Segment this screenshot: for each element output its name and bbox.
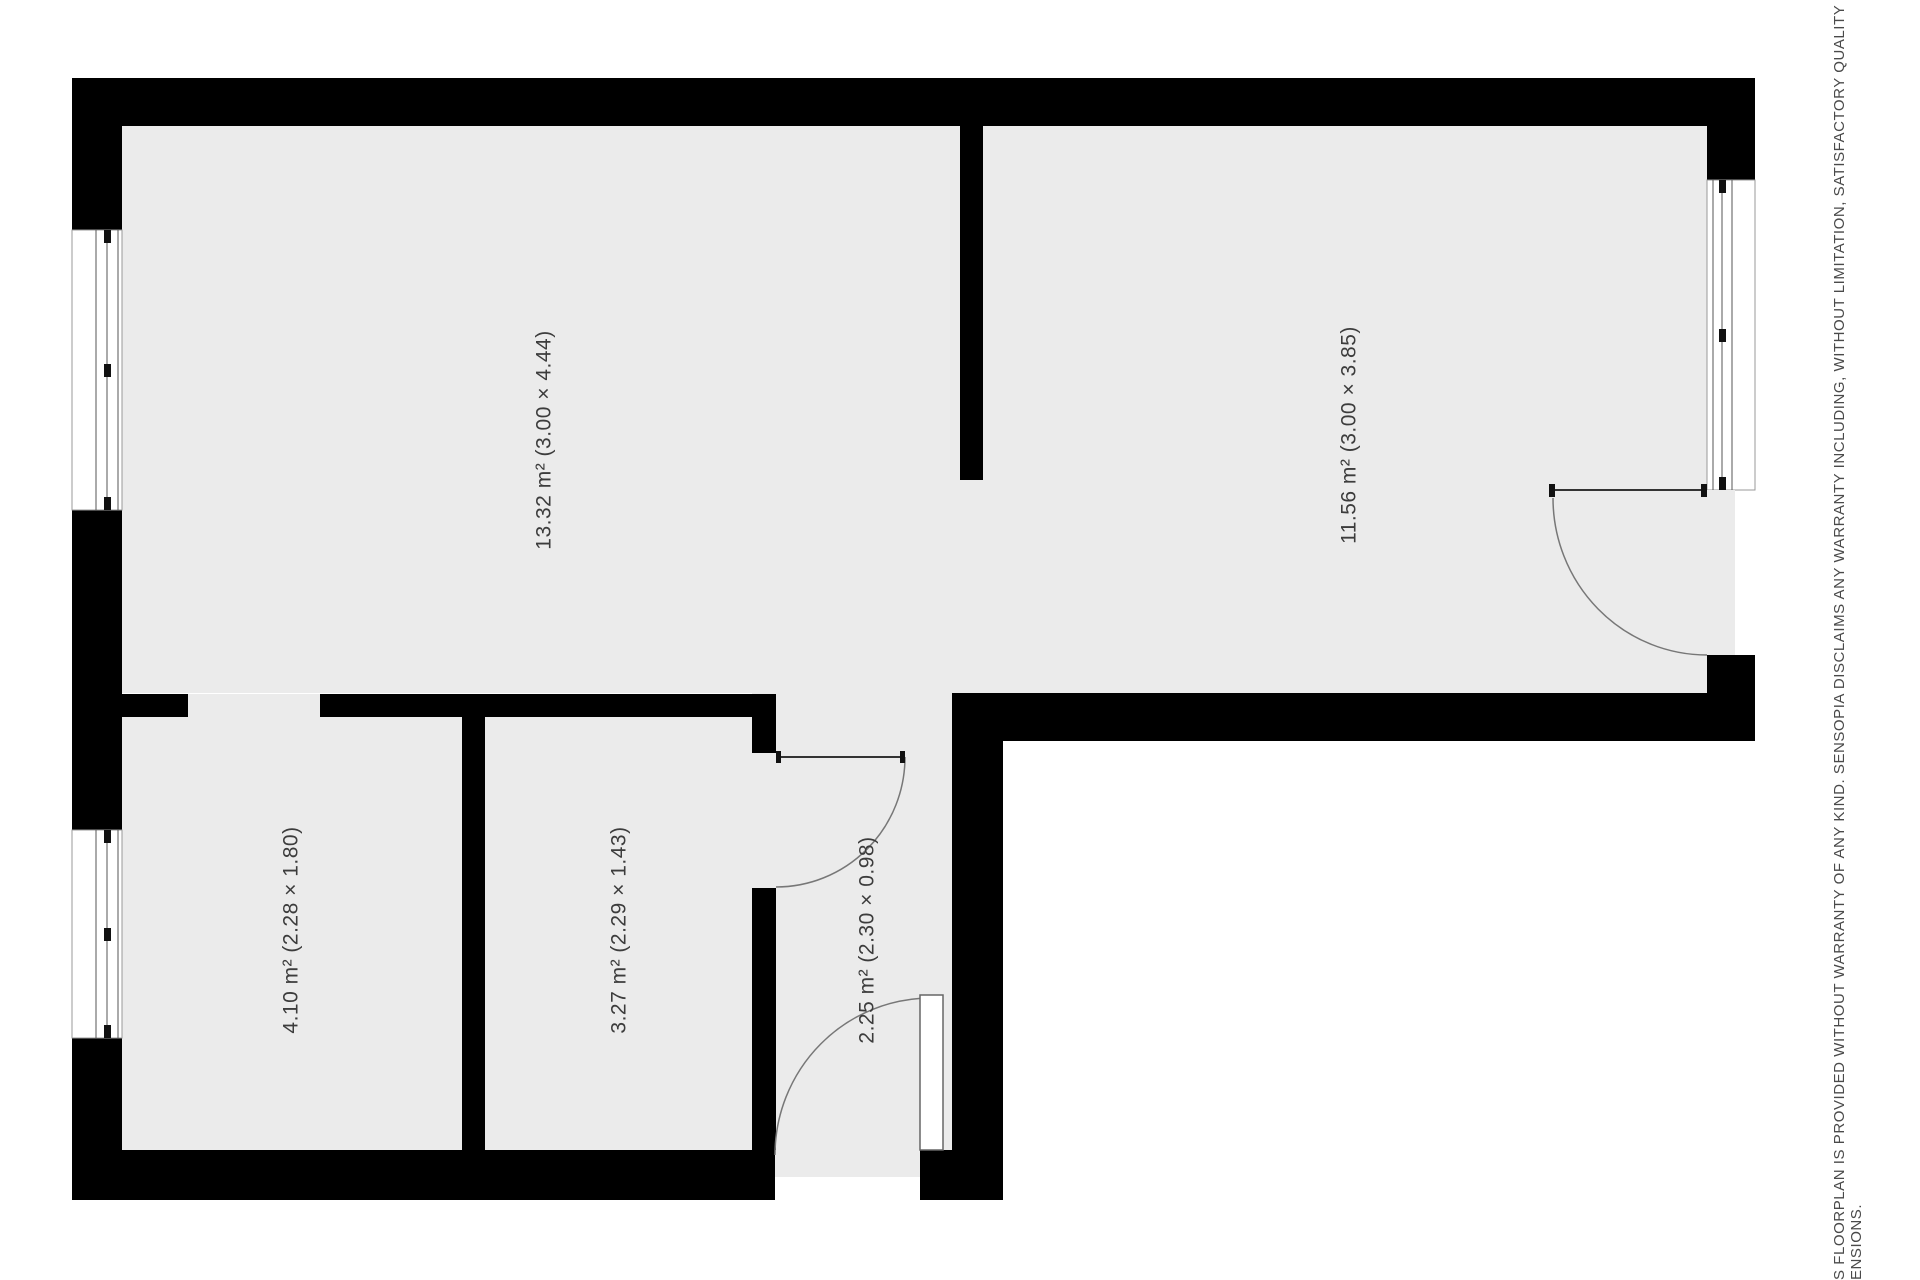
door-threshold (775, 1150, 920, 1177)
room-label: 2.25 m² (2.30 × 0.98) (856, 836, 879, 1043)
wall (920, 1150, 1003, 1200)
disclaimer-text: S FLOORPLAN IS PROVIDED WITHOUT WARRANTY… (1831, 0, 1865, 1280)
floor-area (122, 694, 775, 1150)
room-label: 13.32 m² (3.00 × 4.44) (533, 330, 556, 549)
wall (122, 694, 188, 717)
wall (952, 693, 1003, 1150)
window-tick (1719, 329, 1726, 342)
window-tick (104, 364, 111, 377)
window-tick (1719, 180, 1726, 193)
door-leaf (920, 995, 943, 1150)
wall (982, 693, 1755, 741)
door-jamb-tick (776, 751, 781, 763)
window (72, 830, 122, 1038)
floorplan-canvas: 13.32 m² (3.00 × 4.44)11.56 m² (3.00 × 3… (0, 0, 1920, 1280)
door-jamb-tick (900, 751, 905, 763)
wall (72, 126, 122, 230)
wall (462, 717, 485, 1150)
window-tick (104, 928, 111, 941)
window-tick (104, 497, 111, 510)
wall (1707, 655, 1755, 741)
window (72, 230, 122, 510)
room-label: 4.10 m² (2.28 × 1.80) (280, 826, 303, 1033)
room-label: 3.27 m² (2.29 × 1.43) (608, 826, 631, 1033)
disclaimer-line-1: S FLOORPLAN IS PROVIDED WITHOUT WARRANTY… (1831, 0, 1848, 1280)
floorplan-page: 13.32 m² (3.00 × 4.44)11.56 m² (3.00 × 3… (0, 0, 1920, 1280)
wall (960, 126, 983, 480)
wall (752, 888, 776, 1150)
disclaimer-line-2: ENSIONS. (1848, 0, 1865, 1280)
door-threshold (1707, 490, 1735, 655)
window-tick (1719, 477, 1726, 490)
window-tick (104, 830, 111, 843)
wall (72, 1150, 775, 1200)
window-tick (104, 230, 111, 243)
wall (320, 694, 776, 717)
door-jamb-tick (1549, 484, 1555, 497)
wall (752, 694, 776, 753)
window (1707, 180, 1755, 490)
floor-area (122, 126, 1707, 693)
wall (1707, 126, 1755, 180)
room-label: 11.56 m² (3.00 × 3.85) (1338, 326, 1361, 544)
window-tick (104, 1025, 111, 1038)
door-jamb-tick (1701, 484, 1707, 497)
wall (72, 510, 122, 830)
wall (72, 78, 1755, 126)
